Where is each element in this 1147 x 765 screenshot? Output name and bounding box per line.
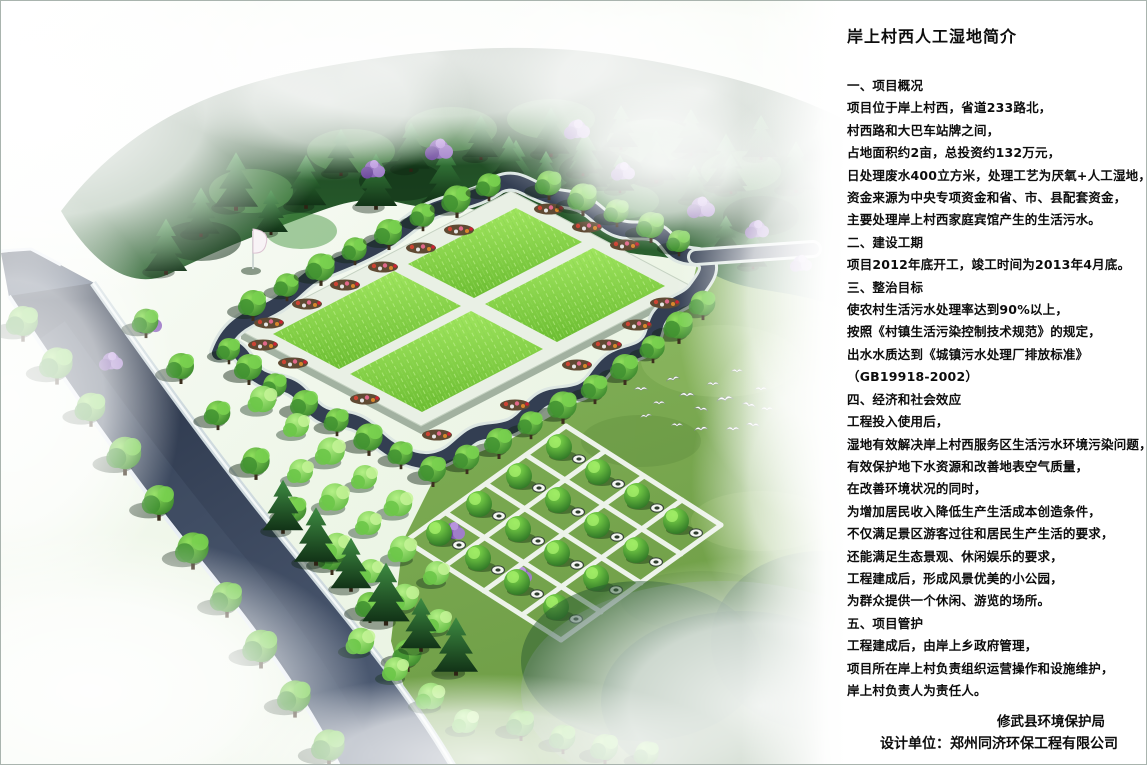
brief-line: 项目2012年底开工，竣工时间为2013年4月底。	[847, 254, 1143, 276]
brief-line: 占地面积约2亩，总投资约132万元，	[847, 142, 1143, 164]
brief-line: 工程建成后，由岸上乡政府管理，	[847, 635, 1143, 657]
section-2-heading: 二、建设工期	[847, 232, 1143, 254]
brief-line: 为群众提供一个休闲、游览的场所。	[847, 590, 1143, 612]
agency-signature: 修武县环境保护局	[847, 711, 1143, 733]
brief-line: 使农村生活污水处理率达到90%以上，	[847, 299, 1143, 321]
brief-line: 资金来源为中央专项资金和省、市、县配套资金，	[847, 187, 1143, 209]
section-3-heading: 三、整治目标	[847, 277, 1143, 299]
brief-line: 村西路和大巴车站牌之间，	[847, 120, 1143, 142]
brief-footer: 修武县环境保护局 设计单位：郑州同济环保工程有限公司	[847, 711, 1143, 756]
brief-line: 岸上村负责人为责任人。	[847, 680, 1143, 702]
brief-line: 项目位于岸上村西，省道233路北，	[847, 97, 1143, 119]
brief-line: 按照《村镇生活污染控制技术规范》的规定，	[847, 321, 1143, 343]
brief-line: 在改善环境状况的同时，	[847, 478, 1143, 500]
brief-line: 还能满足生态景观、休闲娱乐的要求，	[847, 546, 1143, 568]
brief-line: 项目所在岸上村负责组织运营操作和设施维护，	[847, 658, 1143, 680]
brief-line: 有效保护地下水资源和改善地表空气质量，	[847, 456, 1143, 478]
design-unit-signature: 设计单位：郑州同济环保工程有限公司	[847, 733, 1143, 756]
presentation-board: 岸上村西人工湿地简介 一、项目概况 项目位于岸上村西，省道233路北， 村西路和…	[0, 0, 1147, 765]
brief-title: 岸上村西人工湿地简介	[847, 27, 1143, 46]
brief-line: 出水水质达到《城镇污水处理厂排放标准》	[847, 344, 1143, 366]
brief-line: 主要处理岸上村西家庭宾馆产生的生活污水。	[847, 209, 1143, 231]
wetland-rendering-illustration	[1, 1, 846, 765]
section-5-heading: 五、项目管护	[847, 613, 1143, 635]
brief-line: 日处理废水400立方米，处理工艺为厌氧+人工湿地，	[847, 165, 1143, 187]
project-brief-panel: 岸上村西人工湿地简介 一、项目概况 项目位于岸上村西，省道233路北， 村西路和…	[847, 27, 1143, 756]
brief-line: 工程建成后，形成风景优美的小公园，	[847, 568, 1143, 590]
section-1-heading: 一、项目概况	[847, 75, 1143, 97]
brief-line: 不仅满足景区游客过往和居民生产生活的要求，	[847, 523, 1143, 545]
site-rendering	[1, 1, 846, 765]
brief-line: 湿地有效解决岸上村西服务区生活污水环境污染问题，	[847, 434, 1143, 456]
brief-line: （GB19918-2002）	[847, 366, 1143, 388]
brief-line: 工程投入使用后，	[847, 411, 1143, 433]
section-4-heading: 四、经济和社会效应	[847, 389, 1143, 411]
brief-line: 为增加居民收入降低生产生活成本创造条件，	[847, 501, 1143, 523]
